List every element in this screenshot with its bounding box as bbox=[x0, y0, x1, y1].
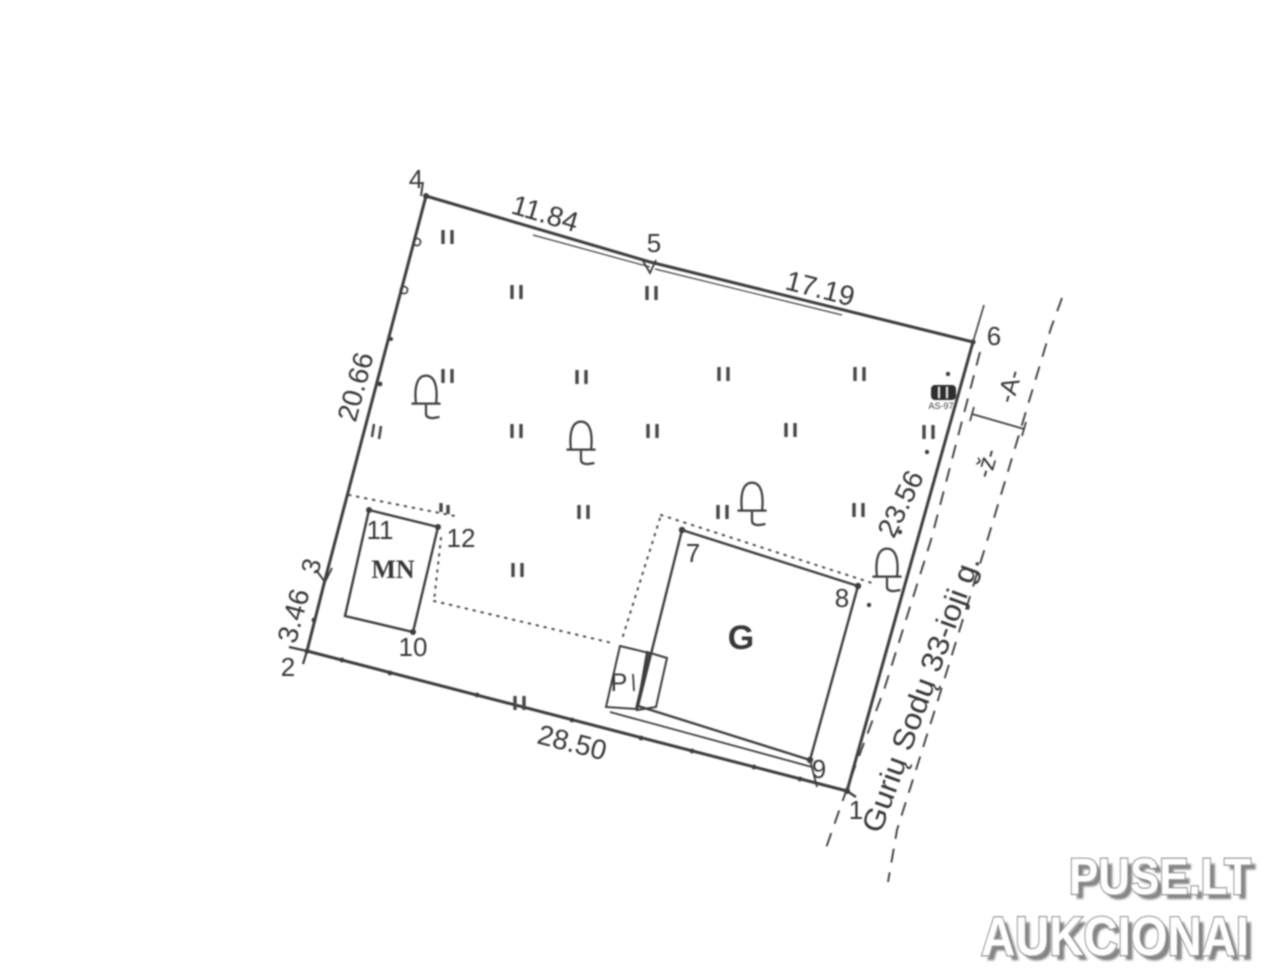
svg-text:AUKCIONAI: AUKCIONAI bbox=[981, 905, 1249, 967]
svg-text:MN: MN bbox=[371, 555, 415, 584]
svg-text:-A-: -A- bbox=[992, 366, 1028, 406]
svg-text:9: 9 bbox=[812, 754, 826, 784]
svg-text:P: P bbox=[611, 669, 628, 697]
svg-text:G: G bbox=[728, 619, 754, 657]
svg-text:7: 7 bbox=[686, 538, 700, 568]
svg-text:PUSE.LT: PUSE.LT bbox=[1069, 848, 1251, 905]
svg-text:-ž-: -ž- bbox=[969, 445, 1004, 481]
svg-text:2: 2 bbox=[281, 652, 295, 682]
svg-text:8: 8 bbox=[835, 583, 849, 613]
svg-text:20.66: 20.66 bbox=[331, 349, 379, 425]
svg-text:6: 6 bbox=[987, 321, 1001, 351]
svg-text:11: 11 bbox=[367, 515, 394, 545]
svg-text:AS-97: AS-97 bbox=[928, 401, 953, 411]
svg-text:12: 12 bbox=[447, 523, 476, 553]
svg-text:3.46: 3.46 bbox=[271, 586, 315, 647]
svg-text:10: 10 bbox=[399, 632, 428, 662]
svg-text:3: 3 bbox=[295, 555, 328, 577]
svg-text:4: 4 bbox=[409, 164, 423, 194]
svg-text:5: 5 bbox=[647, 228, 661, 258]
